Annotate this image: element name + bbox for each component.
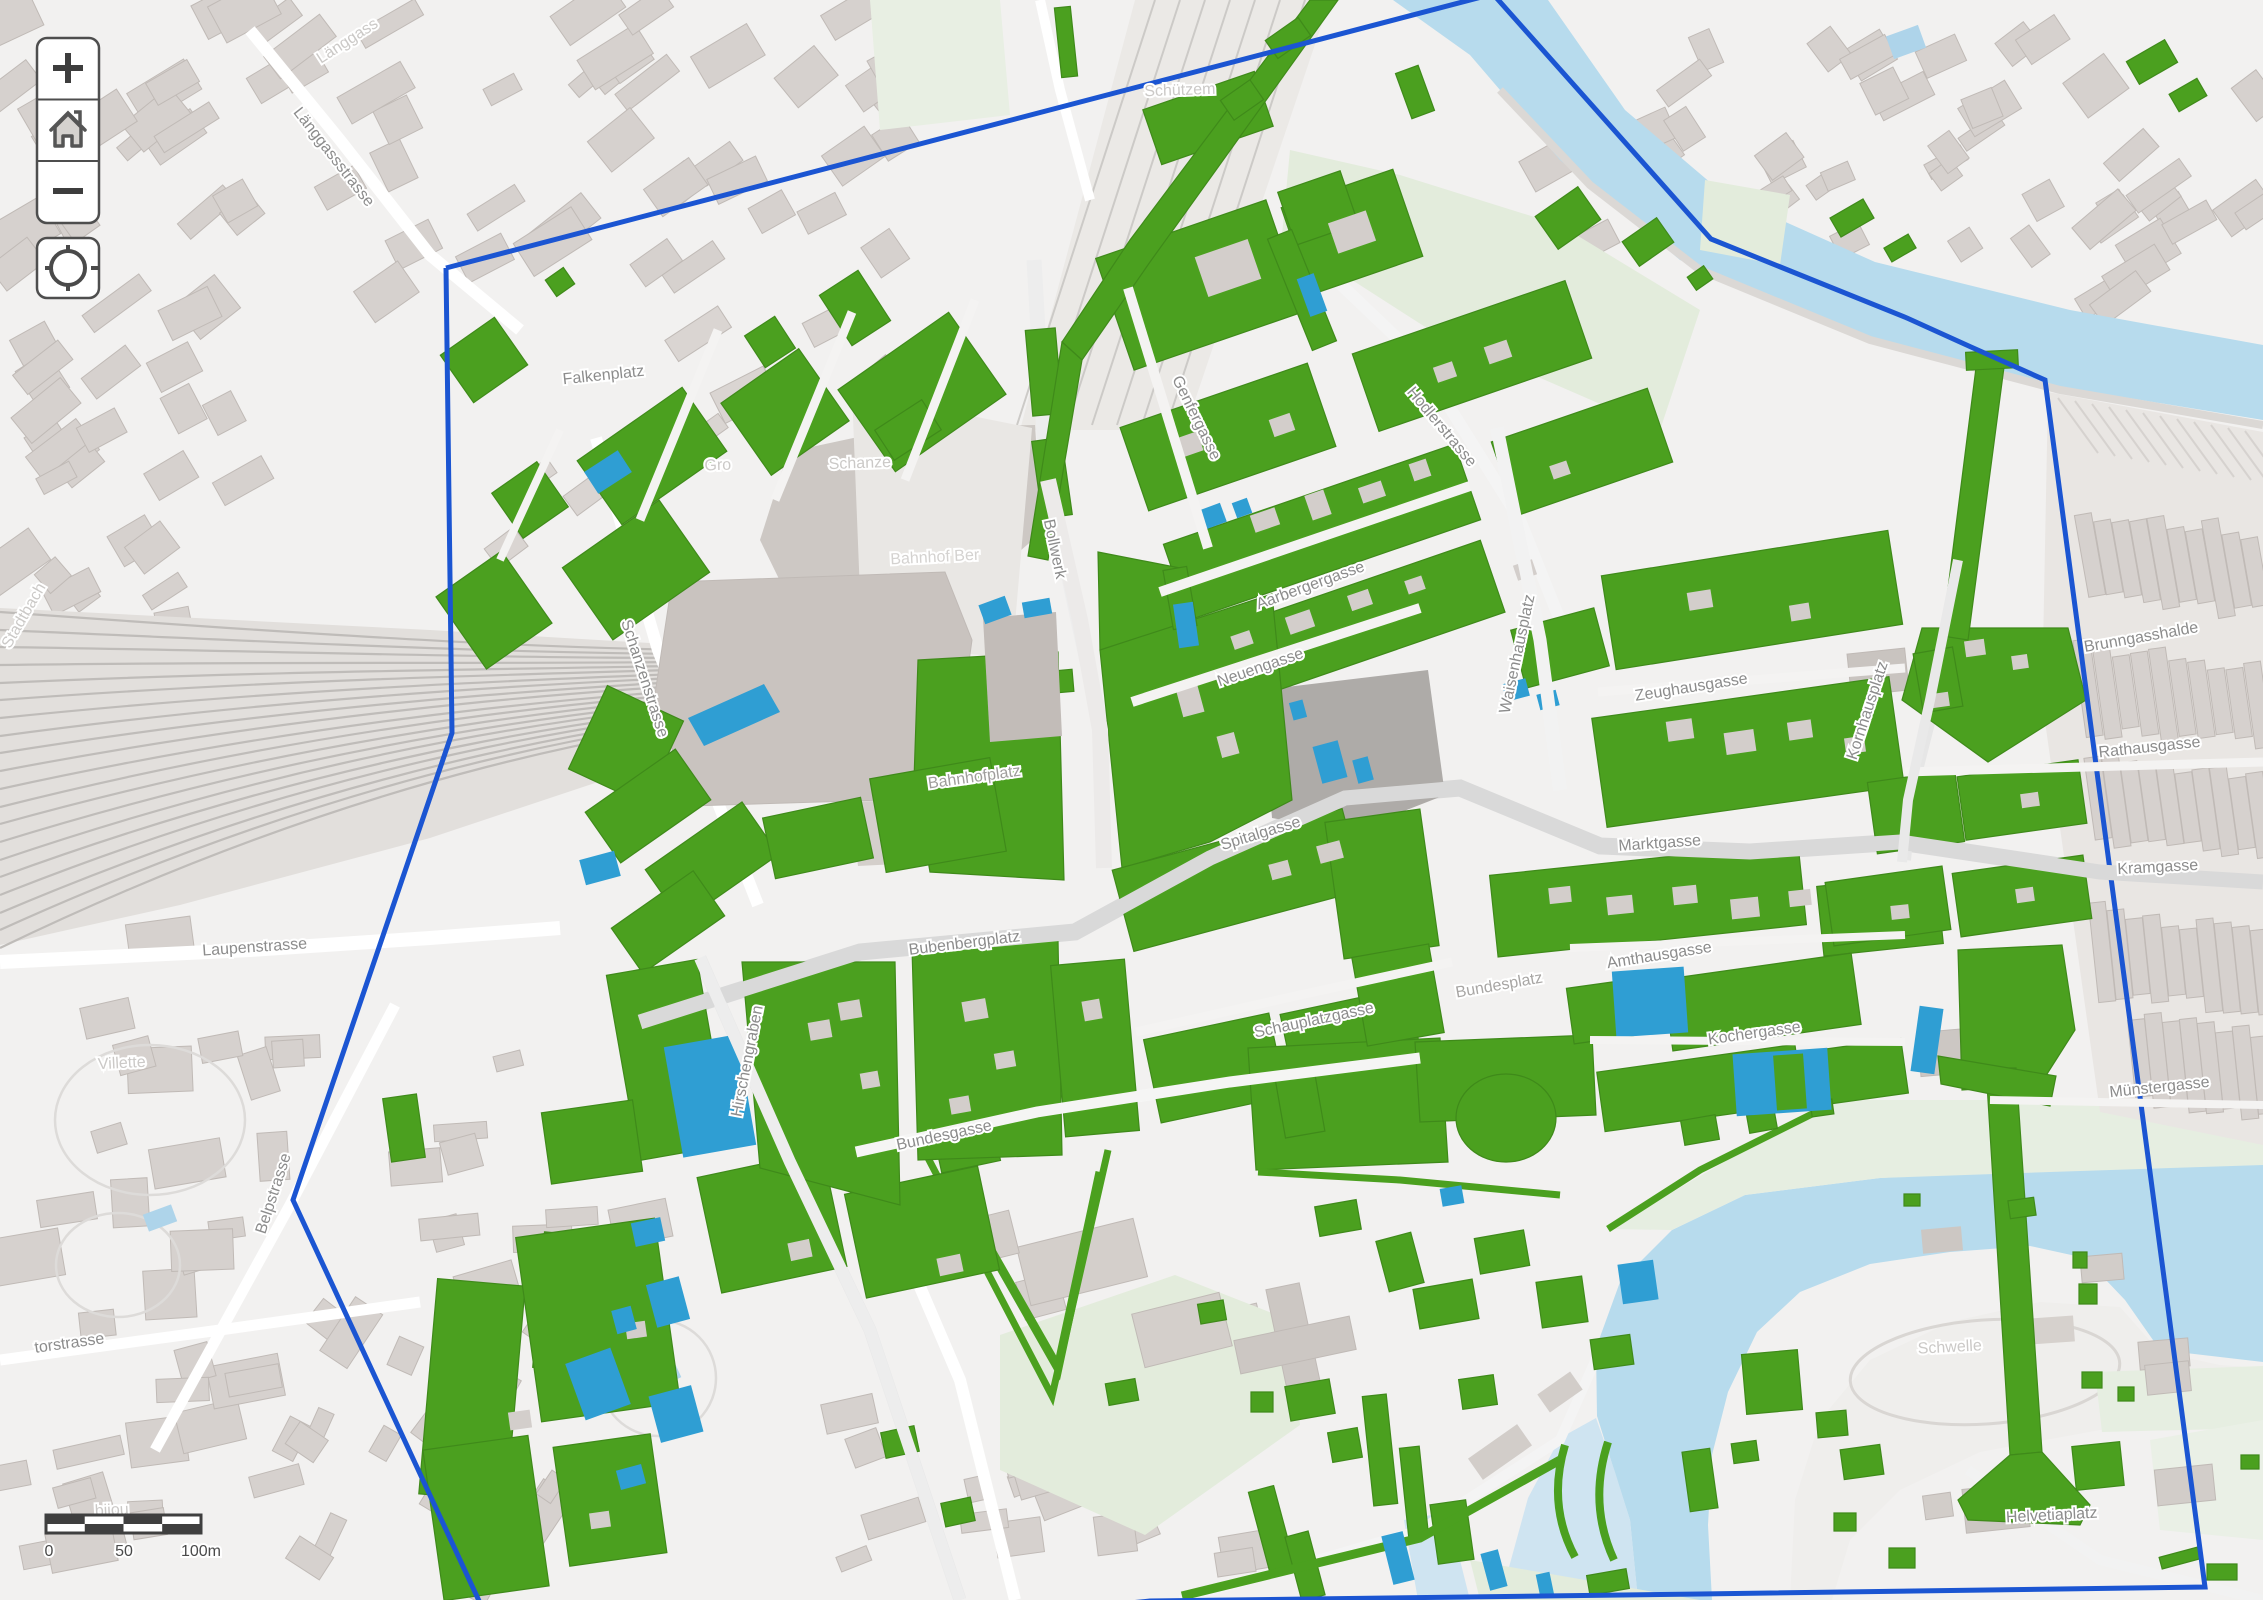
svg-text:Schwelle: Schwelle (1917, 1337, 1982, 1357)
svg-text:Villette: Villette (97, 1054, 146, 1073)
svg-text:Gro: Gro (704, 457, 731, 475)
svg-text:0: 0 (45, 1543, 54, 1560)
svg-text:100m: 100m (181, 1543, 221, 1560)
svg-text:50: 50 (115, 1543, 133, 1560)
svg-text:Schanze: Schanze (828, 454, 891, 473)
svg-text:Schützem: Schützem (1144, 81, 1216, 100)
